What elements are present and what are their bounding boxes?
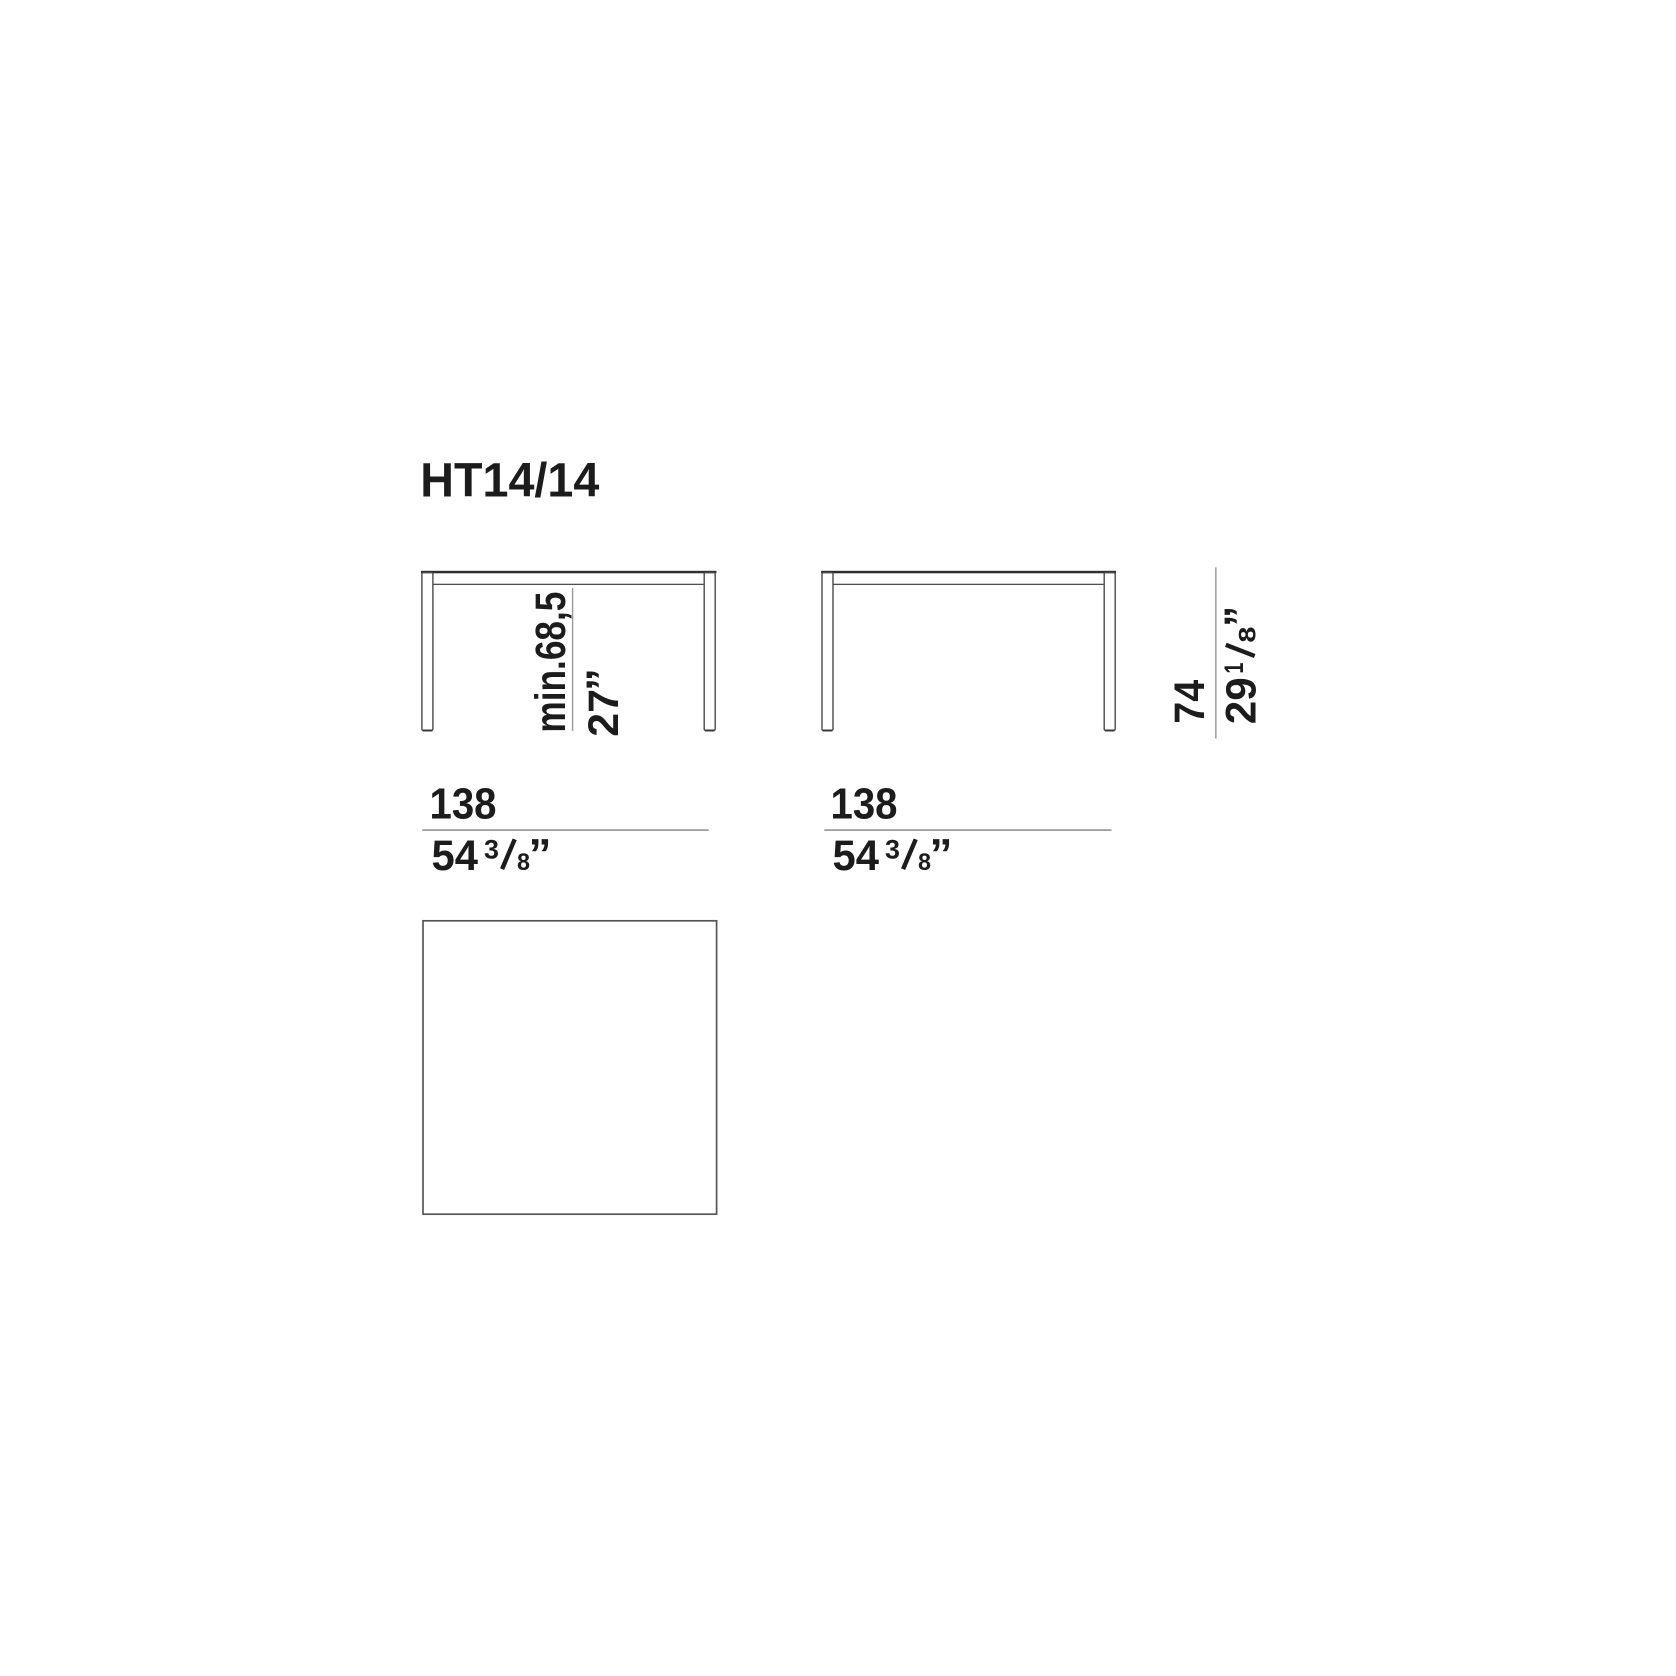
svg-text:54: 54 [833,832,880,880]
svg-text:8: 8 [1235,627,1262,643]
svg-text:1: 1 [1219,663,1249,674]
svg-text:”: ” [1216,606,1264,627]
svg-text:54: 54 [432,832,479,880]
svg-text:3: 3 [885,835,900,865]
svg-text:HT14/14: HT14/14 [420,455,599,508]
svg-text:74: 74 [1166,680,1214,724]
svg-text:27: 27 [580,689,628,737]
svg-text:138: 138 [831,780,898,829]
svg-text:138: 138 [430,780,497,829]
svg-text:29: 29 [1218,677,1266,724]
svg-text:3: 3 [484,835,499,865]
svg-text:min.68,5: min.68,5 [527,592,575,733]
svg-text:”: ” [529,831,552,879]
svg-text:”: ” [578,668,626,691]
svg-text:”: ” [930,831,953,879]
